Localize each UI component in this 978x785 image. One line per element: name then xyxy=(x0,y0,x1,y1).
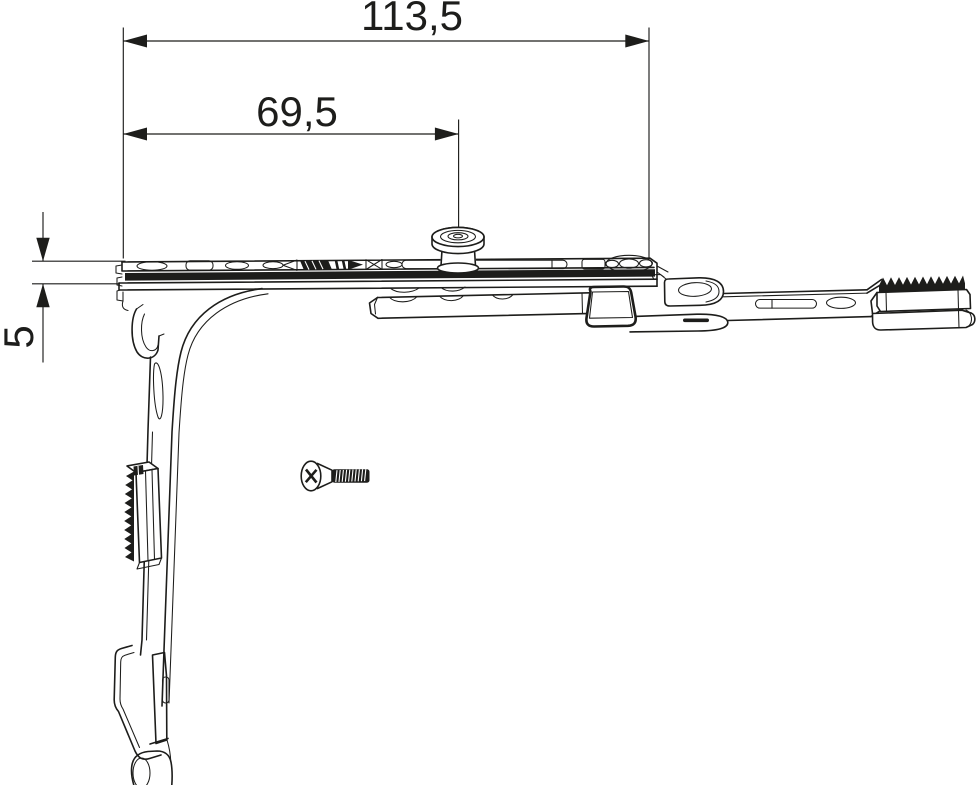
right-gear-block xyxy=(871,276,975,331)
dim-label-edge-offset: 5 xyxy=(0,325,42,348)
rail-slot-hole xyxy=(137,262,167,271)
technical-drawing-canvas: 113,5 69,5 5 xyxy=(0,0,978,785)
arrowhead-down xyxy=(36,238,49,261)
corner-hinge-drawing: 113,5 69,5 5 xyxy=(0,0,978,785)
arrowhead-right xyxy=(625,35,649,48)
rail-long-slot xyxy=(402,260,567,268)
retainer-clip xyxy=(586,287,635,327)
top-rail xyxy=(116,255,668,310)
arrowhead-left xyxy=(123,35,147,48)
dimension-69-5: 69,5 xyxy=(123,88,458,228)
arrowhead-right xyxy=(435,128,459,141)
pivot-link xyxy=(652,275,724,307)
left-gear-block xyxy=(124,462,161,569)
screw-shank xyxy=(332,469,370,482)
dim-label-overall-length: 113,5 xyxy=(361,0,463,39)
foot-oval-hole xyxy=(133,758,150,785)
corner-hook xyxy=(132,309,159,358)
arm-slot xyxy=(756,300,817,309)
pivot-pin xyxy=(432,227,484,273)
mounting-screw xyxy=(301,461,369,491)
dimension-113-5: 113,5 xyxy=(123,0,649,259)
foot-lobe xyxy=(132,751,173,785)
slider-bar xyxy=(630,314,728,332)
bowtie-mark xyxy=(366,260,382,270)
stay-arm xyxy=(724,280,889,321)
arrowhead-up xyxy=(36,284,49,307)
arm-oval-hole xyxy=(827,297,856,308)
dim-label-pin-position: 69,5 xyxy=(256,88,338,135)
gear-teeth-left xyxy=(124,472,134,562)
arrowhead-left xyxy=(123,128,147,141)
pin-base-flange xyxy=(438,263,479,273)
lower-slide-plate xyxy=(370,287,593,318)
dimension-5: 5 xyxy=(0,212,126,363)
molded-arrow-right xyxy=(348,260,363,270)
